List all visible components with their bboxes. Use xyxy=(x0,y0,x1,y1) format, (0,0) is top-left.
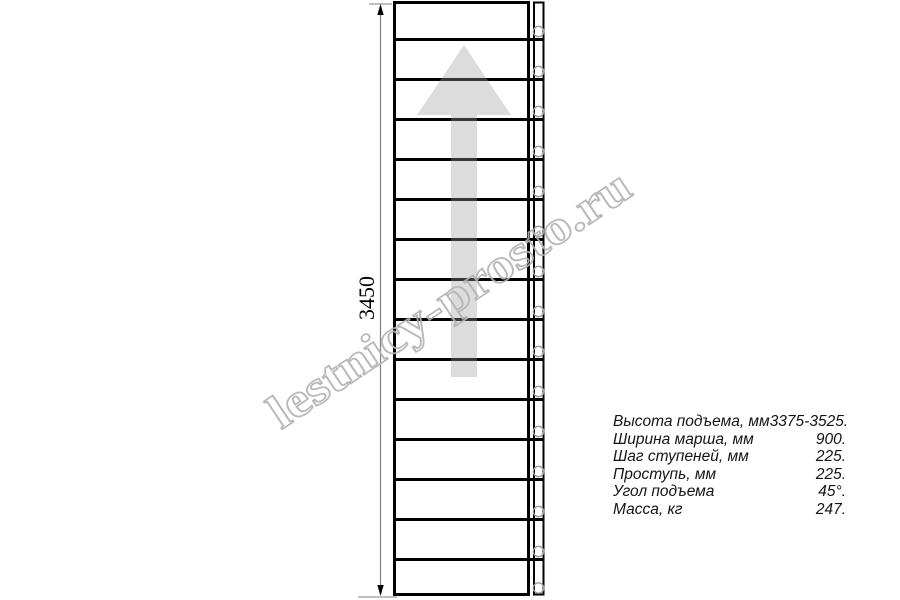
spec-row: Шаг ступеней, мм 225. xyxy=(613,448,846,466)
dimension-label: 3450 xyxy=(354,276,379,320)
spec-row: Проступь, мм 225. xyxy=(613,466,846,484)
dimension-arrowhead-top xyxy=(377,4,383,15)
spec-value: 247. xyxy=(816,501,846,519)
spec-value: 3375-3525. xyxy=(770,413,848,431)
spec-row: Масса, кг 247. xyxy=(613,501,846,519)
specs-table: Высота подъема, мм 3375-3525. Ширина мар… xyxy=(613,413,846,519)
spec-row: Угол подъема 45°. xyxy=(613,483,846,501)
spec-value: 225. xyxy=(816,466,846,484)
spec-label: Высота подъема, мм xyxy=(613,413,770,431)
spec-label: Шаг ступеней, мм xyxy=(613,448,749,466)
spec-label: Угол подъема xyxy=(613,483,714,501)
drawing-canvas: 3450 lestnicy-prosto.ru Высота подъема, … xyxy=(0,0,900,600)
spec-label: Масса, кг xyxy=(613,501,682,519)
spec-value: 45°. xyxy=(818,483,846,501)
spec-row: Ширина марша, мм 900. xyxy=(613,431,846,449)
dimension-arrowhead-bottom xyxy=(377,585,383,596)
spec-label: Ширина марша, мм xyxy=(613,431,754,449)
spec-value: 900. xyxy=(816,431,846,449)
spec-row: Высота подъема, мм 3375-3525. xyxy=(613,413,846,431)
spec-value: 225. xyxy=(816,448,846,466)
spec-label: Проступь, мм xyxy=(613,466,716,484)
